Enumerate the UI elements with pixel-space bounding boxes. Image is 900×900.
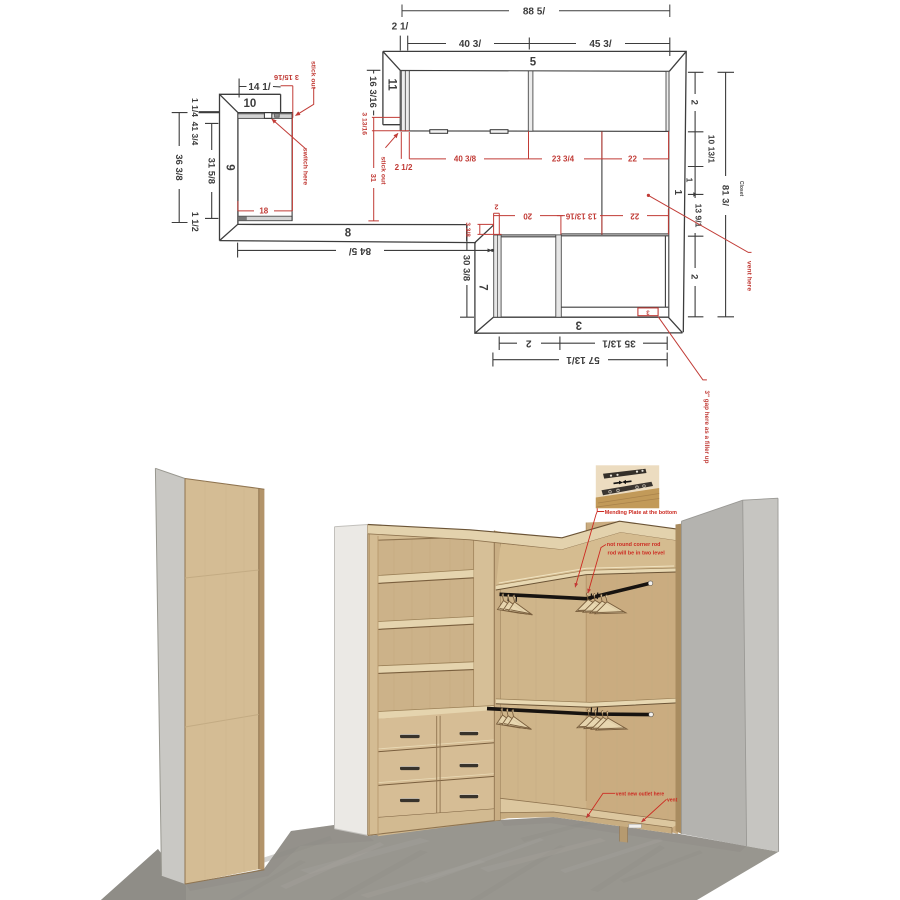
- svg-text:3" gap here as a filler up: 3" gap here as a filler up: [703, 391, 710, 464]
- svg-text:2 1/: 2 1/: [392, 22, 409, 33]
- svg-text:84 5/: 84 5/: [349, 245, 371, 256]
- svg-text:3 15/16: 3 15/16: [274, 73, 299, 82]
- svg-text:stick out: stick out: [309, 61, 316, 90]
- svg-text:2: 2: [689, 100, 700, 105]
- svg-text:40 3/8: 40 3/8: [454, 154, 477, 163]
- svg-text:2 1/2: 2 1/2: [395, 163, 413, 172]
- svg-text:5: 5: [530, 56, 537, 68]
- svg-text:16 3/16: 16 3/16: [367, 76, 378, 108]
- svg-text:3: 3: [646, 308, 650, 314]
- svg-text:vent: vent: [667, 798, 678, 804]
- svg-text:1 1/2: 1 1/2: [190, 212, 200, 232]
- svg-text:stick out: stick out: [379, 157, 386, 186]
- svg-text:31: 31: [369, 174, 378, 182]
- svg-text:30 3/8: 30 3/8: [461, 255, 472, 281]
- svg-text:22: 22: [628, 154, 637, 163]
- svg-text:35 13/1: 35 13/1: [602, 338, 636, 349]
- svg-text:18: 18: [259, 206, 268, 215]
- svg-text:Mending Plate at the bottom: Mending Plate at the bottom: [605, 510, 677, 516]
- svg-text:23 3/4: 23 3/4: [552, 154, 575, 163]
- svg-text:7: 7: [477, 284, 489, 290]
- svg-text:11: 11: [386, 79, 398, 92]
- svg-text:vent new outlet here: vent new outlet here: [616, 792, 665, 798]
- svg-text:2: 2: [689, 274, 700, 279]
- svg-text:45 3/: 45 3/: [589, 39, 611, 50]
- svg-text:Closet: Closet: [738, 181, 744, 197]
- svg-text:10 13/1: 10 13/1: [706, 135, 716, 164]
- svg-text:20: 20: [523, 211, 532, 220]
- svg-text:41 3/4: 41 3/4: [190, 122, 200, 146]
- svg-text:81 3/: 81 3/: [720, 185, 731, 206]
- svg-text:31 5/8: 31 5/8: [205, 158, 216, 184]
- svg-text:40 3/: 40 3/: [459, 39, 481, 50]
- svg-text:rod will be in two level: rod will be in two level: [608, 551, 666, 557]
- svg-text:3: 3: [576, 318, 582, 330]
- svg-text:not round corner rod: not round corner rod: [607, 542, 661, 548]
- svg-text:1: 1: [685, 178, 695, 183]
- svg-text:14 1/: 14 1/: [248, 82, 270, 93]
- svg-text:10: 10: [244, 98, 257, 110]
- svg-text:9: 9: [224, 164, 236, 170]
- svg-text:22: 22: [630, 211, 639, 220]
- svg-text:3 3/8: 3 3/8: [464, 222, 471, 237]
- svg-text:3 13/16: 3 13/16: [360, 112, 367, 135]
- svg-text:1: 1: [672, 190, 683, 196]
- svg-text:switch here: switch here: [302, 148, 309, 186]
- svg-text:8: 8: [345, 227, 352, 239]
- svg-text:13 13/16: 13 13/16: [565, 211, 597, 220]
- svg-text:57 13/1: 57 13/1: [566, 354, 600, 365]
- svg-text:1 1/4: 1 1/4: [190, 98, 200, 117]
- svg-text:88 5/: 88 5/: [523, 7, 545, 18]
- svg-text:36 3/8: 36 3/8: [173, 154, 184, 180]
- svg-text:2: 2: [525, 338, 531, 349]
- svg-text:vent here: vent here: [746, 261, 753, 291]
- svg-text:2: 2: [494, 203, 498, 210]
